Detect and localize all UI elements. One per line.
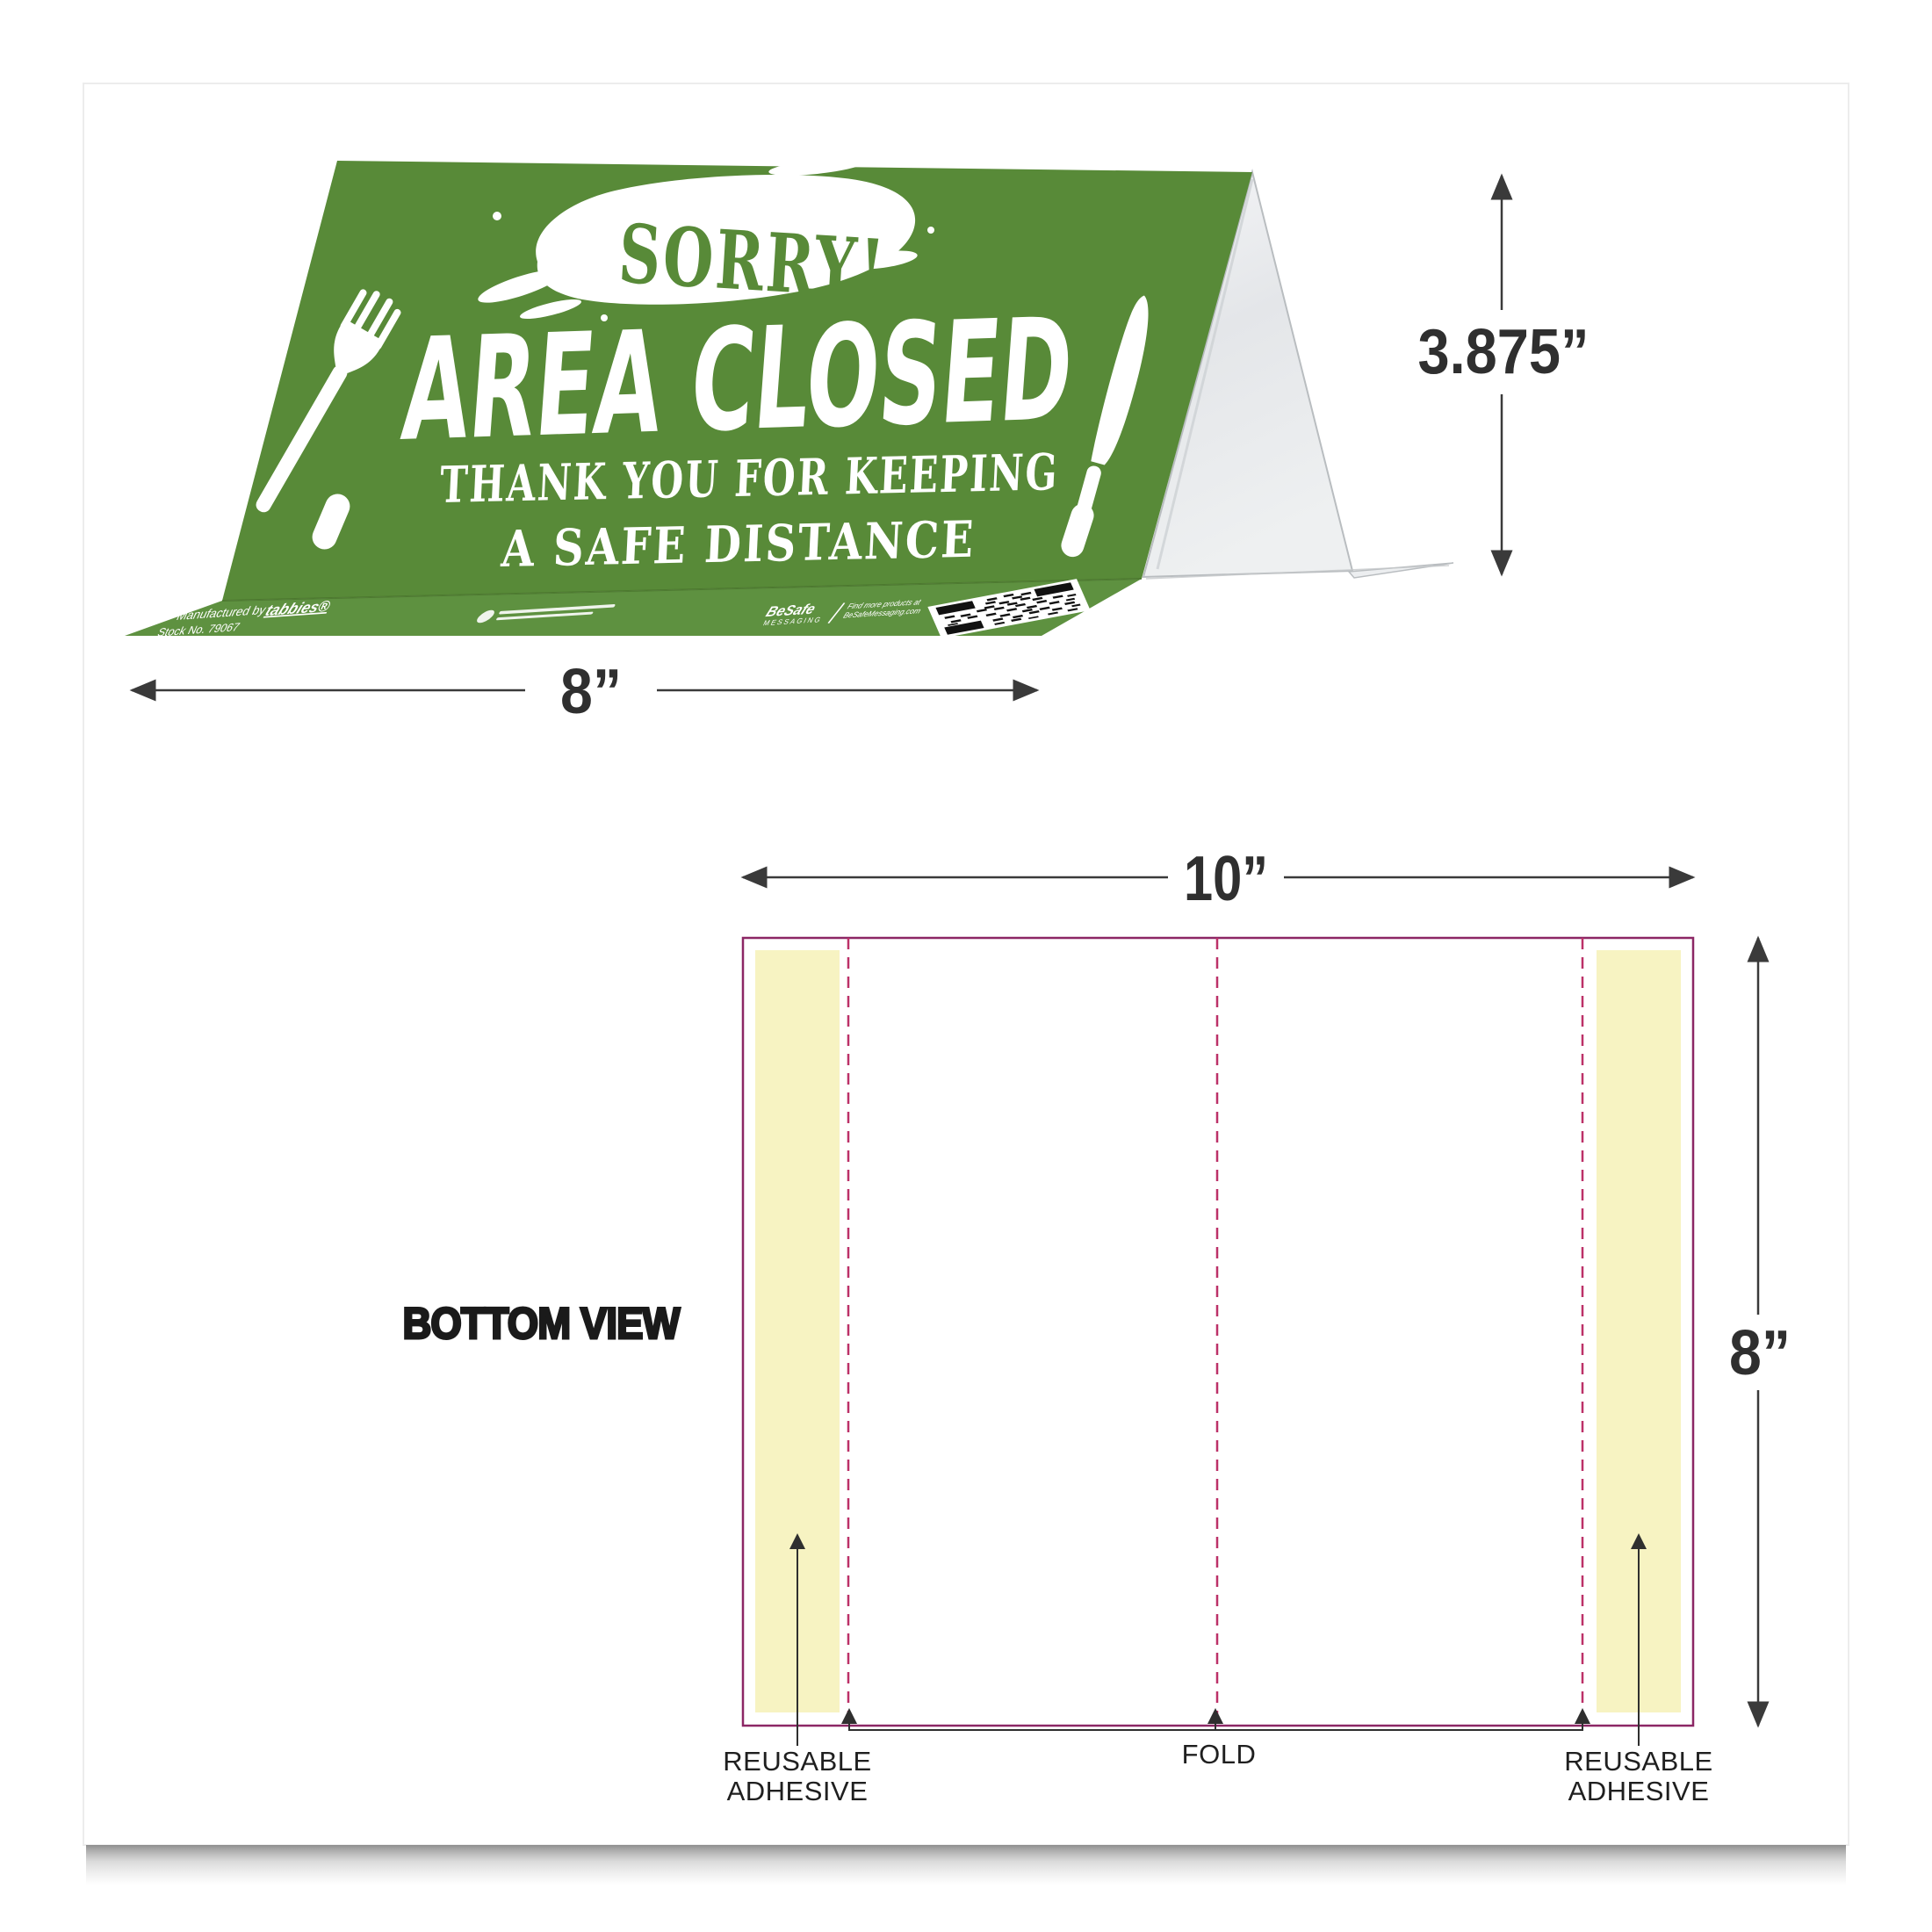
table-tent-illustration: SORRY! AREA CLOSED THANK YOU FOR KEEPING…	[125, 155, 1453, 638]
product-diagram: SORRY! AREA CLOSED THANK YOU FOR KEEPING…	[0, 0, 1932, 1932]
product-diagram-page: SORRY! AREA CLOSED THANK YOU FOR KEEPING…	[0, 0, 1932, 1932]
subline2-text: A SAFE DISTANCE	[499, 510, 977, 579]
adhesive-left-line2: ADHESIVE	[727, 1776, 869, 1806]
adhesive-left-line1: REUSABLE	[723, 1746, 871, 1777]
bottom-view-title: BOTTOM VIEW	[403, 1299, 681, 1348]
sheet-height-value: 8”	[1729, 1318, 1791, 1388]
card-drop-shadow	[86, 1845, 1846, 1885]
tent-height-value: 3.875”	[1418, 317, 1590, 387]
sheet-width-value: 10”	[1184, 844, 1268, 914]
adhesive-right-line2: ADHESIVE	[1568, 1776, 1710, 1806]
subline2-group: A SAFE DISTANCE	[498, 510, 978, 579]
fold-label: FOLD	[1182, 1739, 1257, 1770]
adhesive-right-line1: REUSABLE	[1564, 1746, 1712, 1777]
tent-width-value: 8”	[560, 657, 622, 727]
